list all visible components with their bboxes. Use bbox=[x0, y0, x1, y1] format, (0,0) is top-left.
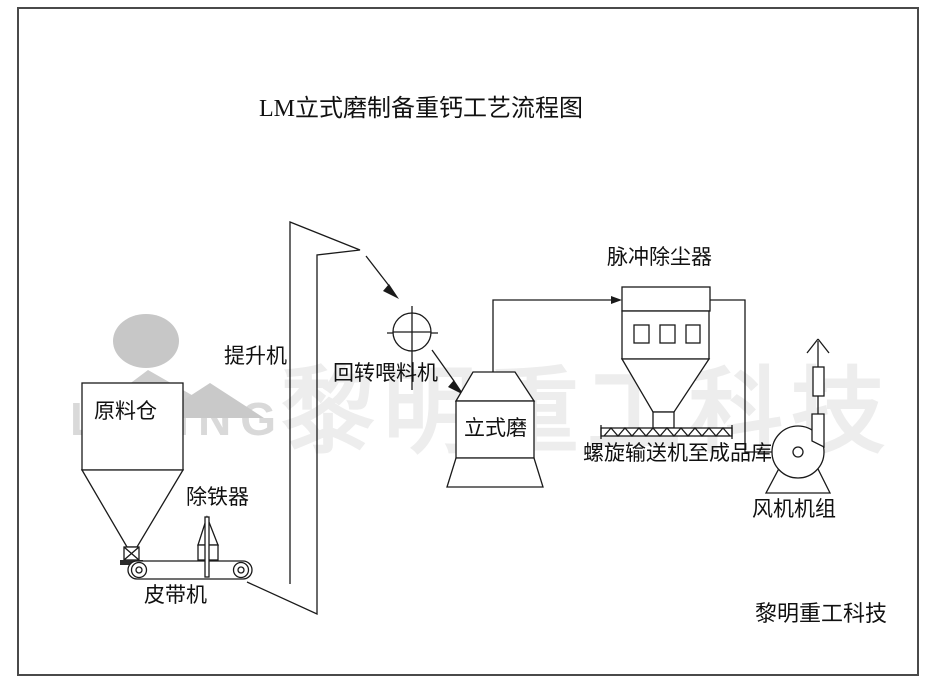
company-signature: 黎明重工科技 bbox=[755, 601, 887, 626]
feed-arrow-elevator-to-feeder bbox=[366, 256, 399, 299]
label-vertical-mill: 立式磨 bbox=[464, 416, 527, 440]
belt-conveyor-shape bbox=[128, 561, 252, 579]
diagram-title: LM立式磨制备重钙工艺流程图 bbox=[259, 96, 583, 124]
label-screw-conveyor: 螺旋输送机至成品库 bbox=[583, 441, 772, 465]
fan-unit-shape bbox=[766, 339, 830, 493]
label-elevator: 提升机 bbox=[224, 344, 287, 368]
mill-outlet-duct bbox=[493, 296, 622, 372]
label-fan-unit: 风机机组 bbox=[752, 497, 836, 521]
diagram-page: 黎明重工科技 LIMING bbox=[0, 0, 934, 686]
label-belt-conveyor: 皮带机 bbox=[144, 583, 207, 607]
label-iron-remover: 除铁器 bbox=[186, 485, 249, 509]
pulse-dust-collector-shape bbox=[622, 287, 710, 428]
label-rotary-feeder: 回转喂料机 bbox=[333, 361, 438, 385]
label-dust-collector: 脉冲除尘器 bbox=[607, 245, 712, 269]
label-raw-material-silo: 原料仓 bbox=[94, 399, 157, 423]
